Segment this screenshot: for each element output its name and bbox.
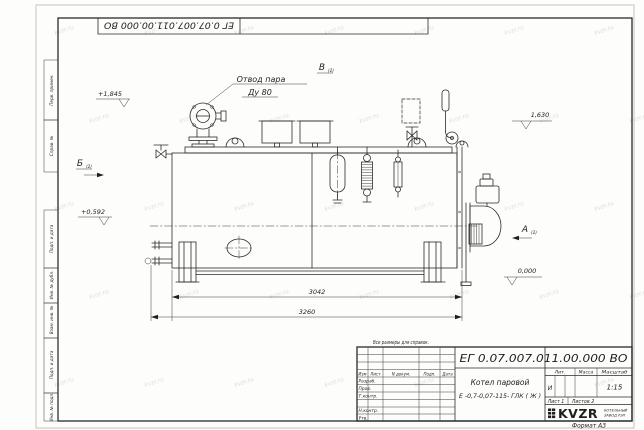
watermark-text: kvzr.ru: [413, 200, 435, 213]
watermark-text: kvzr.ru: [628, 288, 644, 301]
svg-text:0,000: 0,000: [518, 267, 537, 275]
elevation-mark-top-left: +1,845: [96, 90, 130, 107]
row-tkontr: Т.контр.: [359, 394, 378, 400]
watermark-text: kvzr.ru: [323, 200, 345, 213]
watermark-text: kvzr.ru: [88, 288, 110, 301]
elevation-mark-zero: 0,000: [504, 267, 542, 285]
document-code: ЕГ 0.07.007.011.00.000 ВО: [460, 353, 628, 365]
watermark-text: kvzr.ru: [268, 288, 290, 301]
row-nkontr: Н.контр.: [359, 408, 379, 414]
svg-text:(2): (2): [86, 164, 92, 169]
product-model: Е -0,7-0,07-115- ГЛК ( Ж ): [459, 393, 541, 400]
row-utv: Утв.: [359, 416, 368, 422]
margin-stamp-label: Справ. №: [49, 135, 54, 156]
boiler-side-view: [145, 90, 501, 286]
title-block: Изм Лист N докум. Подп. Дата Разраб. Про…: [357, 347, 632, 430]
watermark-text: kvzr.ru: [358, 112, 380, 125]
col-podp: Подп.: [423, 372, 435, 377]
drawing-sheet: kvzr.rukvzr.rukvzr.rukvzr.rukvzr.rukvzr.…: [0, 0, 644, 430]
steam-outlet-valve: [189, 103, 226, 147]
watermark-text: kvzr.ru: [88, 112, 110, 125]
margin-stamps: Перв. примен. Справ. № Подп. и дата Инв.…: [44, 60, 58, 421]
margin-stamp-label: Подп. и дата: [49, 350, 54, 379]
company-name-line2: ЗАВОД РЭП: [604, 414, 626, 418]
product-name: Котел паровой: [471, 378, 530, 387]
margin-stamp-label: Подп. и дата: [49, 224, 54, 253]
watermark-layer: kvzr.rukvzr.rukvzr.rukvzr.rukvzr.rukvzr.…: [53, 24, 644, 389]
view-label-v: В (2): [317, 63, 334, 73]
watermark-text: kvzr.ru: [143, 376, 165, 389]
dim-shell-length: 3042: [309, 288, 326, 296]
watermark-text: kvzr.ru: [53, 200, 75, 213]
logo-text: KVZR: [558, 406, 598, 421]
watermark-text: kvzr.ru: [628, 112, 644, 125]
margin-stamp-label: Инв. № подл.: [49, 393, 54, 422]
steam-outlet-label: Отвод пара: [237, 75, 286, 84]
litera-value: И: [548, 385, 553, 392]
svg-text:+0,592: +0,592: [81, 208, 105, 216]
watermark-text: kvzr.ru: [53, 24, 75, 37]
col-data: Дата: [441, 372, 453, 377]
scale-value: 1:15: [607, 384, 623, 392]
format-label: Формат А3: [572, 423, 606, 430]
company-logo: KVZR КОТЕЛЬНЫЙ ЗАВОД РЭП: [548, 406, 628, 421]
watermark-text: kvzr.ru: [413, 376, 435, 389]
reference-note: Все размеры для справок.: [373, 340, 429, 346]
scale-header: Масштаб: [602, 370, 628, 376]
watermark-text: kvzr.ru: [593, 200, 615, 213]
corner-stamp-code: ЕГ 0.07.007.011.00.000 ВО: [104, 20, 234, 30]
margin-stamp-label: Взам. инв. №: [49, 305, 54, 334]
watermark-text: kvzr.ru: [538, 288, 560, 301]
row-prov: Пров.: [359, 386, 372, 392]
watermark-text: kvzr.ru: [503, 200, 525, 213]
elevation-mark-mid-left: +0,592: [78, 208, 112, 225]
watermark-text: kvzr.ru: [503, 24, 525, 37]
dim-overall-length: 3260: [299, 308, 316, 316]
watermark-text: kvzr.ru: [593, 24, 615, 37]
col-izm: Изм: [358, 372, 366, 377]
watermark-text: kvzr.ru: [413, 24, 435, 37]
watermark-text: kvzr.ru: [268, 112, 290, 125]
svg-text:В: В: [319, 63, 325, 73]
view-label-a: А (2): [512, 225, 537, 240]
watermark-text: kvzr.ru: [358, 288, 380, 301]
watermark-text: kvzr.ru: [448, 288, 470, 301]
steam-outlet-size-label: Ду 80: [247, 88, 272, 97]
boiler-general-view-drawing: kvzr.rukvzr.rukvzr.rukvzr.rukvzr.rukvzr.…: [0, 0, 644, 430]
svg-text:(2): (2): [328, 68, 334, 73]
watermark-text: kvzr.ru: [143, 200, 165, 213]
row-razrab: Разраб.: [359, 379, 376, 385]
watermark-text: kvzr.ru: [53, 376, 75, 389]
litera-header: Лит.: [554, 370, 566, 376]
watermark-text: kvzr.ru: [323, 24, 345, 37]
sheets-total: Листов 2: [571, 399, 595, 405]
col-ndokum: N докум.: [392, 372, 411, 377]
svg-text:А: А: [521, 225, 528, 235]
margin-stamp-label: Инв. № дубл.: [49, 271, 54, 300]
watermark-text: kvzr.ru: [233, 376, 255, 389]
mass-header: Масса: [579, 370, 594, 376]
watermark-text: kvzr.ru: [233, 24, 255, 37]
svg-text:(2): (2): [531, 230, 537, 235]
svg-text:1,630: 1,630: [531, 111, 550, 119]
sheet-number: Лист 1: [547, 399, 565, 405]
svg-text:+1,845: +1,845: [98, 90, 122, 98]
watermark-text: kvzr.ru: [233, 200, 255, 213]
burner: [461, 174, 501, 286]
watermark-text: kvzr.ru: [178, 288, 200, 301]
margin-stamp-label: Перв. примен.: [49, 74, 54, 105]
col-list: Лист: [369, 372, 381, 377]
svg-text:Б: Б: [77, 159, 83, 169]
view-label-b: Б (2): [76, 159, 104, 177]
watermark-text: kvzr.ru: [448, 112, 470, 125]
company-name-line1: КОТЕЛЬНЫЙ: [604, 408, 628, 413]
watermark-text: kvzr.ru: [323, 376, 345, 389]
